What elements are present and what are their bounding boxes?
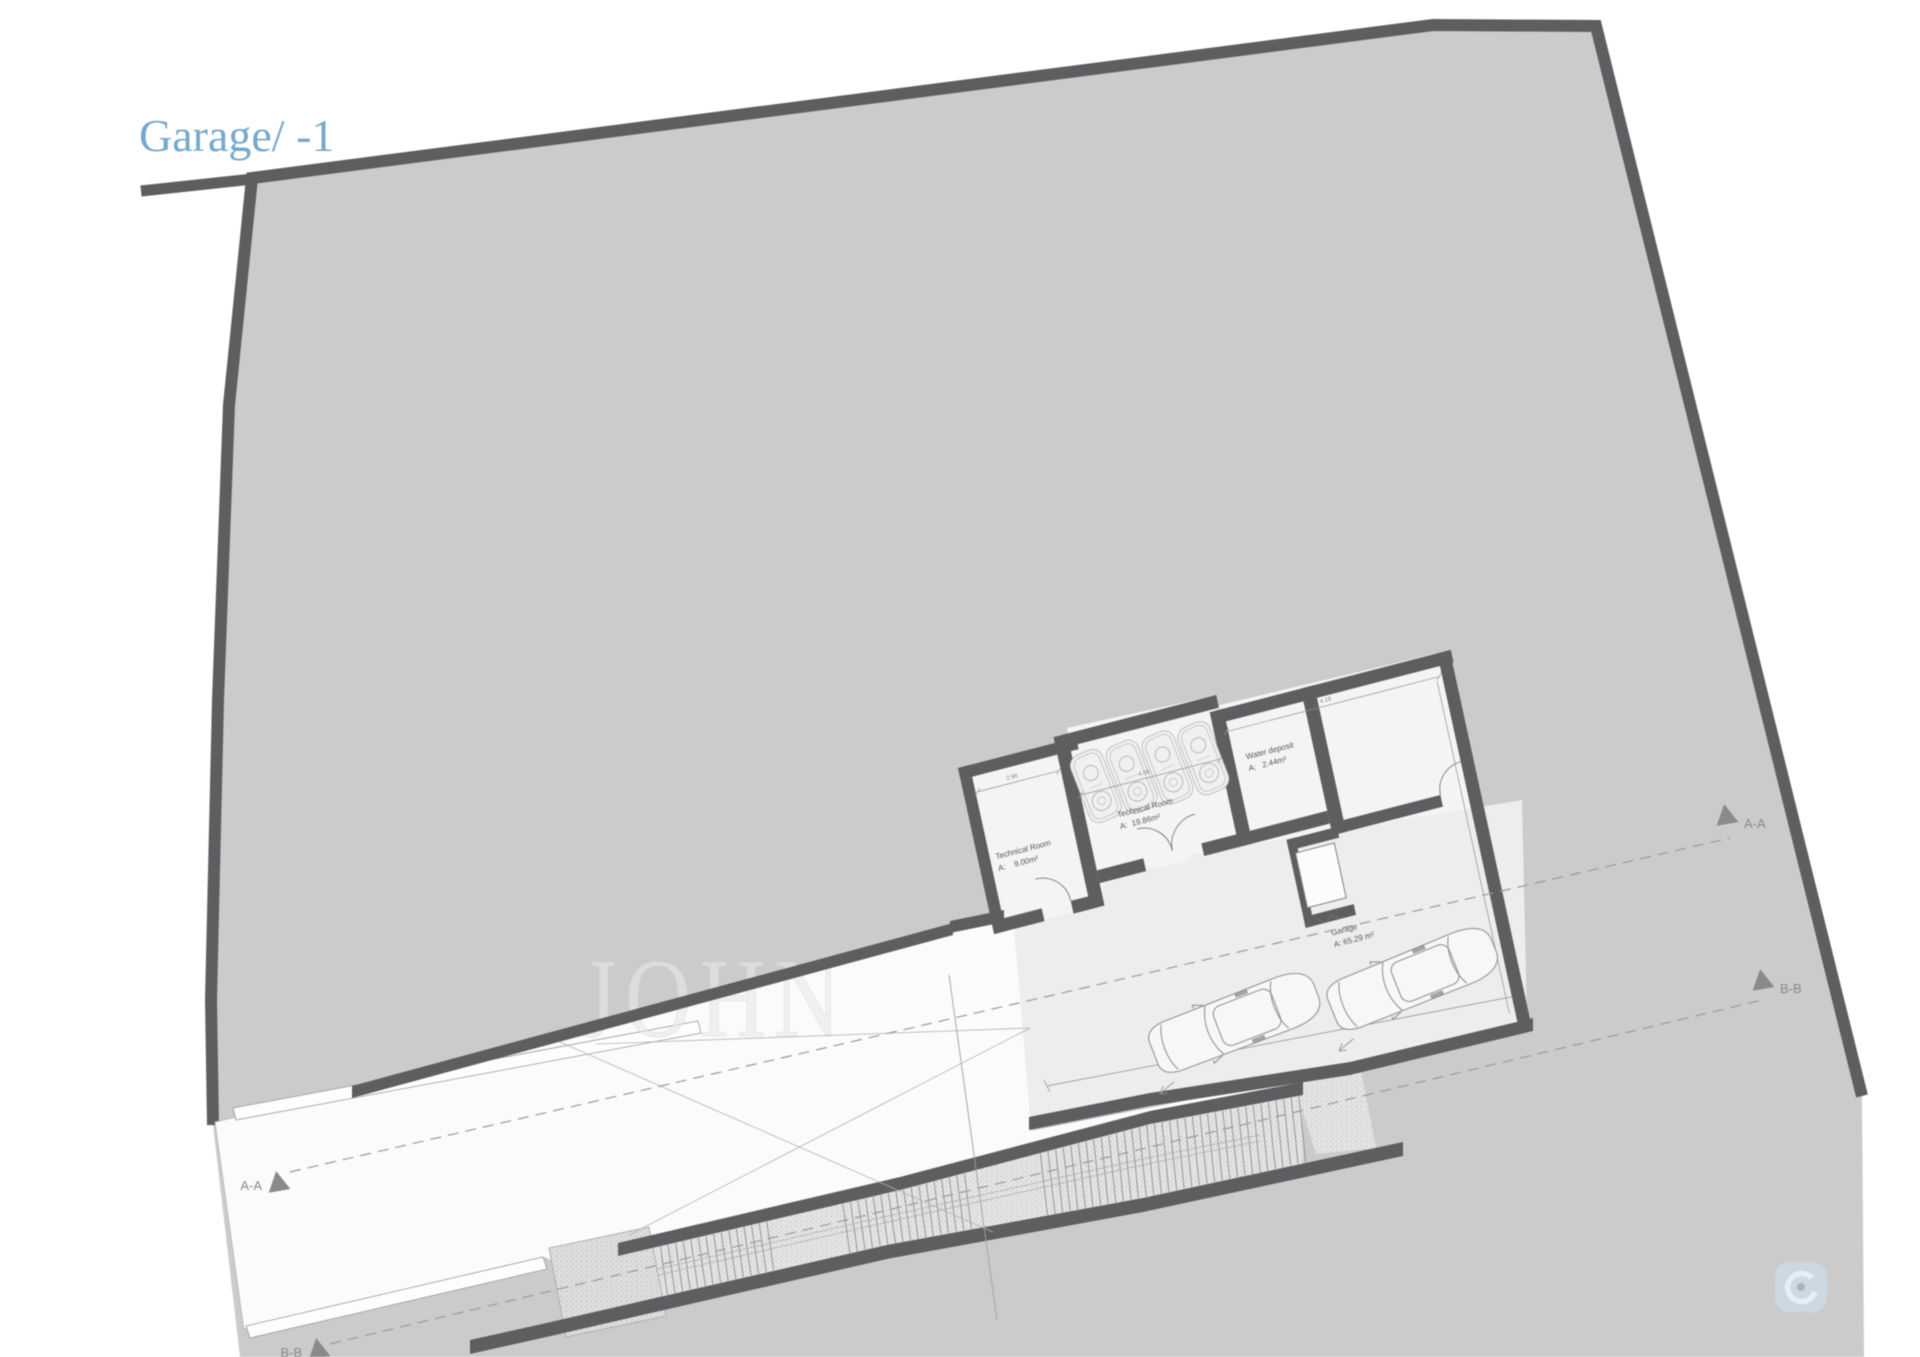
svg-text:B-B: B-B bbox=[1780, 981, 1802, 996]
svg-text:A-A: A-A bbox=[240, 1178, 262, 1193]
svg-text:B-B: B-B bbox=[280, 1345, 302, 1357]
svg-text:Garage/ -1: Garage/ -1 bbox=[139, 110, 334, 161]
svg-text:A-A: A-A bbox=[1744, 816, 1766, 831]
